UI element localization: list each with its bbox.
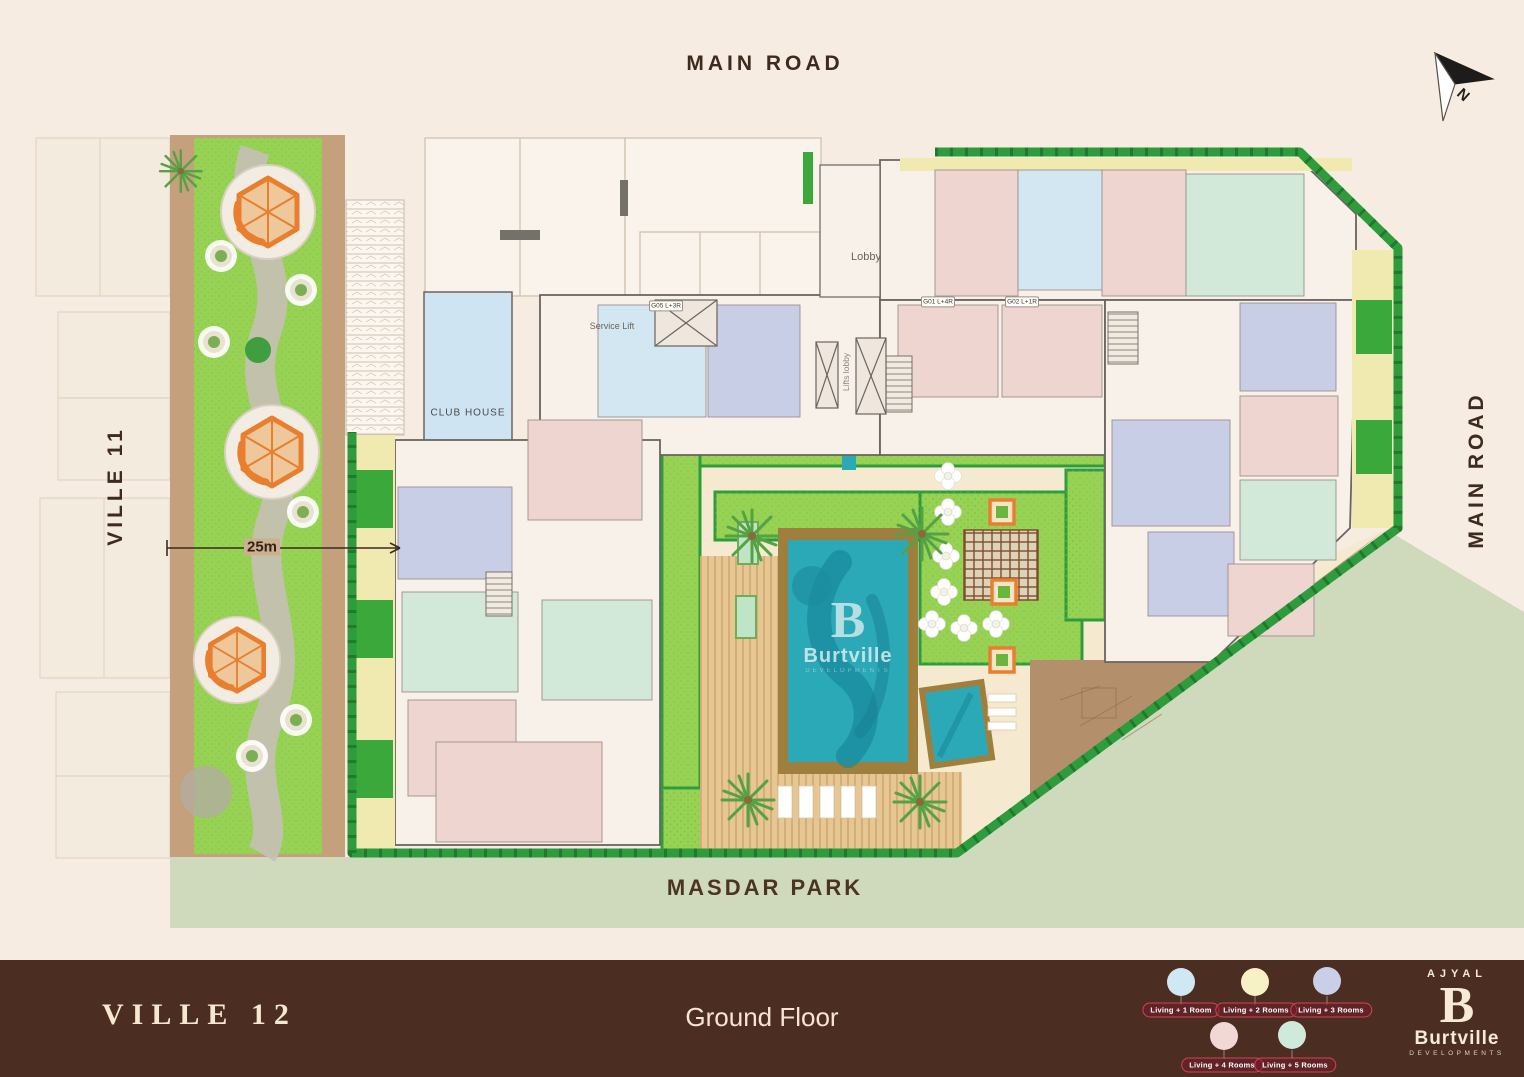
- main-road-label-right: MAIN ROAD: [1465, 391, 1489, 548]
- playground-structure-icon: [194, 617, 280, 703]
- lobby-label: Lobby: [851, 251, 881, 263]
- pool-watermark: B Burtville DEVELOPMENTS: [803, 598, 892, 674]
- watermark-monogram: B: [803, 598, 892, 645]
- legend-swatch: [1167, 968, 1195, 996]
- legend-swatch: [1313, 967, 1341, 995]
- ramp-area: [346, 200, 404, 435]
- brand-tagline: DEVELOPMENTS: [1387, 1050, 1524, 1057]
- playground-structure-icon: [221, 165, 315, 259]
- playground-structure-icon: [225, 405, 319, 499]
- site-plan-page: MAIN ROAD MAIN ROAD VILLE 11 MASDAR PARK…: [0, 0, 1524, 1077]
- legend-label: Living + 2 Rooms: [1215, 1003, 1297, 1018]
- brand-company: Burtville: [1387, 1028, 1524, 1050]
- ville-11-label: VILLE 11: [104, 426, 128, 546]
- unit-tag: G02 L+1R: [1005, 296, 1039, 307]
- background-building-outline: [425, 138, 821, 296]
- legend-swatch: [1278, 1021, 1306, 1049]
- brand-logo-icon: B: [1387, 980, 1524, 1032]
- club-house-area: [424, 292, 512, 457]
- terrace-band-north: [900, 158, 1352, 171]
- legend-label: Living + 1 Room: [1142, 1003, 1219, 1018]
- kids-pool: [922, 682, 992, 766]
- floor-name: Ground Floor: [685, 1002, 838, 1033]
- entry-hedge: [803, 152, 813, 204]
- main-road-label-top: MAIN ROAD: [686, 52, 843, 76]
- legend-label: Living + 4 Rooms: [1181, 1058, 1263, 1073]
- club-house-label: CLUB HOUSE: [430, 408, 505, 419]
- legend-label: Living + 3 Rooms: [1290, 1003, 1372, 1018]
- service-lift-label: Service Lift: [586, 321, 638, 331]
- masdar-park-label: MASDAR PARK: [667, 875, 863, 901]
- watermark-tagline: DEVELOPMENTS: [803, 668, 892, 674]
- terrace-band-east: [1352, 250, 1396, 528]
- garden-band-west: [350, 435, 395, 853]
- legend-swatch: [1241, 968, 1269, 996]
- scale-label: 25m: [244, 539, 280, 556]
- lifts-lobby-label: Lifts lobby: [841, 353, 851, 391]
- unit-tag: G05 L+3R: [649, 300, 683, 311]
- project-title: VILLE 12: [102, 998, 297, 1032]
- legend-swatch: [1210, 1022, 1238, 1050]
- developer-brand: AJYAL B Burtville DEVELOPMENTS: [1387, 962, 1524, 1057]
- unit-tag: G01 L+4R: [921, 296, 955, 307]
- left-park-strip: [160, 135, 345, 857]
- watermark-name: Burtville: [803, 645, 892, 668]
- floor-plan-drawing: [0, 0, 1524, 1077]
- legend-label: Living + 5 Rooms: [1254, 1058, 1336, 1073]
- ville-11-building-outline: [36, 138, 170, 858]
